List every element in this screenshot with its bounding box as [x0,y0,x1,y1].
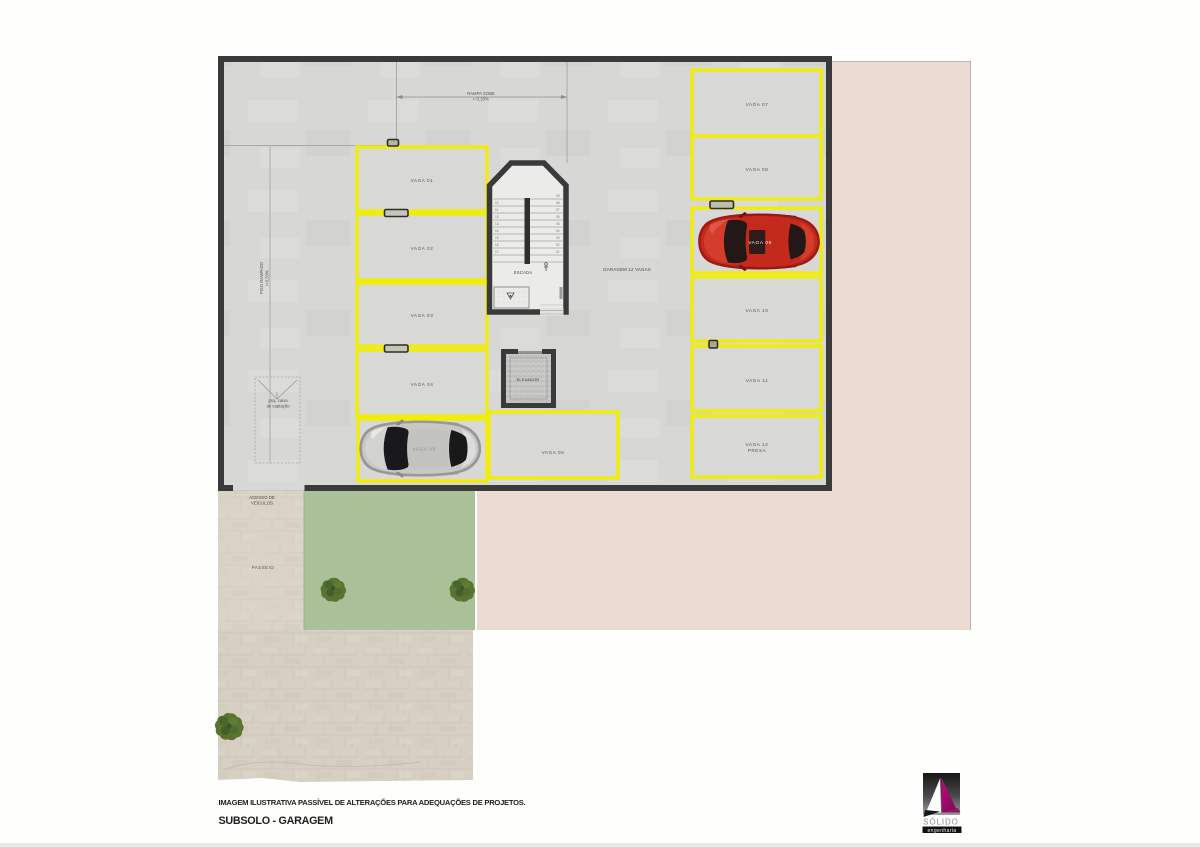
svg-text:10: 10 [495,201,499,205]
svg-text:03: 03 [556,236,560,240]
svg-text:VAGA 07: VAGA 07 [746,102,769,107]
svg-text:14: 14 [495,229,499,233]
svg-text:ACESSO DE: ACESSO DE [249,495,275,500]
svg-text:IMAGEM ILUSTRATIVA PASSÍVEL DE: IMAGEM ILUSTRATIVA PASSÍVEL DE ALTERAÇÕE… [219,798,526,807]
svg-text:SÓLIDO: SÓLIDO [923,818,959,827]
svg-text:PRESA: PRESA [748,448,767,453]
svg-text:VAGA 10: VAGA 10 [746,308,769,313]
svg-text:PISO RAMPADO: PISO RAMPADO [259,261,264,294]
svg-text:ESCADA: ESCADA [514,270,532,275]
svg-text:05: 05 [556,222,560,226]
svg-text:VAGA 02: VAGA 02 [411,246,434,251]
svg-text:02: 02 [556,243,560,247]
svg-text:17: 17 [495,250,499,254]
svg-text:VAGA 03: VAGA 03 [411,313,434,318]
svg-text:de captação: de captação [267,404,290,409]
svg-text:RAMPA SOBE: RAMPA SOBE [467,91,495,96]
svg-text:15: 15 [495,236,499,240]
svg-text:06: 06 [556,215,560,219]
svg-text:12: 12 [495,215,499,219]
svg-text:VAGA 09: VAGA 09 [748,240,772,245]
svg-text:07: 07 [556,208,560,212]
svg-text:VAGA 08: VAGA 08 [746,167,769,172]
svg-text:ELEVADOR: ELEVADOR [517,378,540,382]
svg-text:GARAGEM 12 VAGAS: GARAGEM 12 VAGAS [603,267,651,272]
svg-text:09: 09 [556,194,560,198]
svg-text:16: 16 [495,243,499,247]
svg-text:i=3,33%: i=3,33% [265,270,270,286]
svg-text:VAGA 01: VAGA 01 [411,178,434,183]
svg-text:VAGA 04: VAGA 04 [411,382,434,387]
svg-text:PASSEIO: PASSEIO [252,565,275,570]
svg-text:08: 08 [556,201,560,205]
svg-text:VAGA 11: VAGA 11 [746,378,768,383]
svg-text:SUBSOLO - GARAGEM: SUBSOLO - GARAGEM [219,815,334,827]
svg-text:proj. caixa: proj. caixa [268,398,288,403]
svg-text:i=3,33%: i=3,33% [473,97,489,102]
svg-text:VAGA 05: VAGA 05 [413,447,436,452]
svg-text:engenharia: engenharia [927,828,956,834]
svg-text:04: 04 [556,229,560,233]
svg-text:VAGA 12: VAGA 12 [746,442,769,447]
svg-text:VEÍCULOS: VEÍCULOS [251,501,273,506]
svg-text:13: 13 [495,222,499,226]
svg-text:11: 11 [495,208,499,212]
svg-text:VAGA 06: VAGA 06 [542,450,565,455]
svg-text:01: 01 [556,250,560,254]
